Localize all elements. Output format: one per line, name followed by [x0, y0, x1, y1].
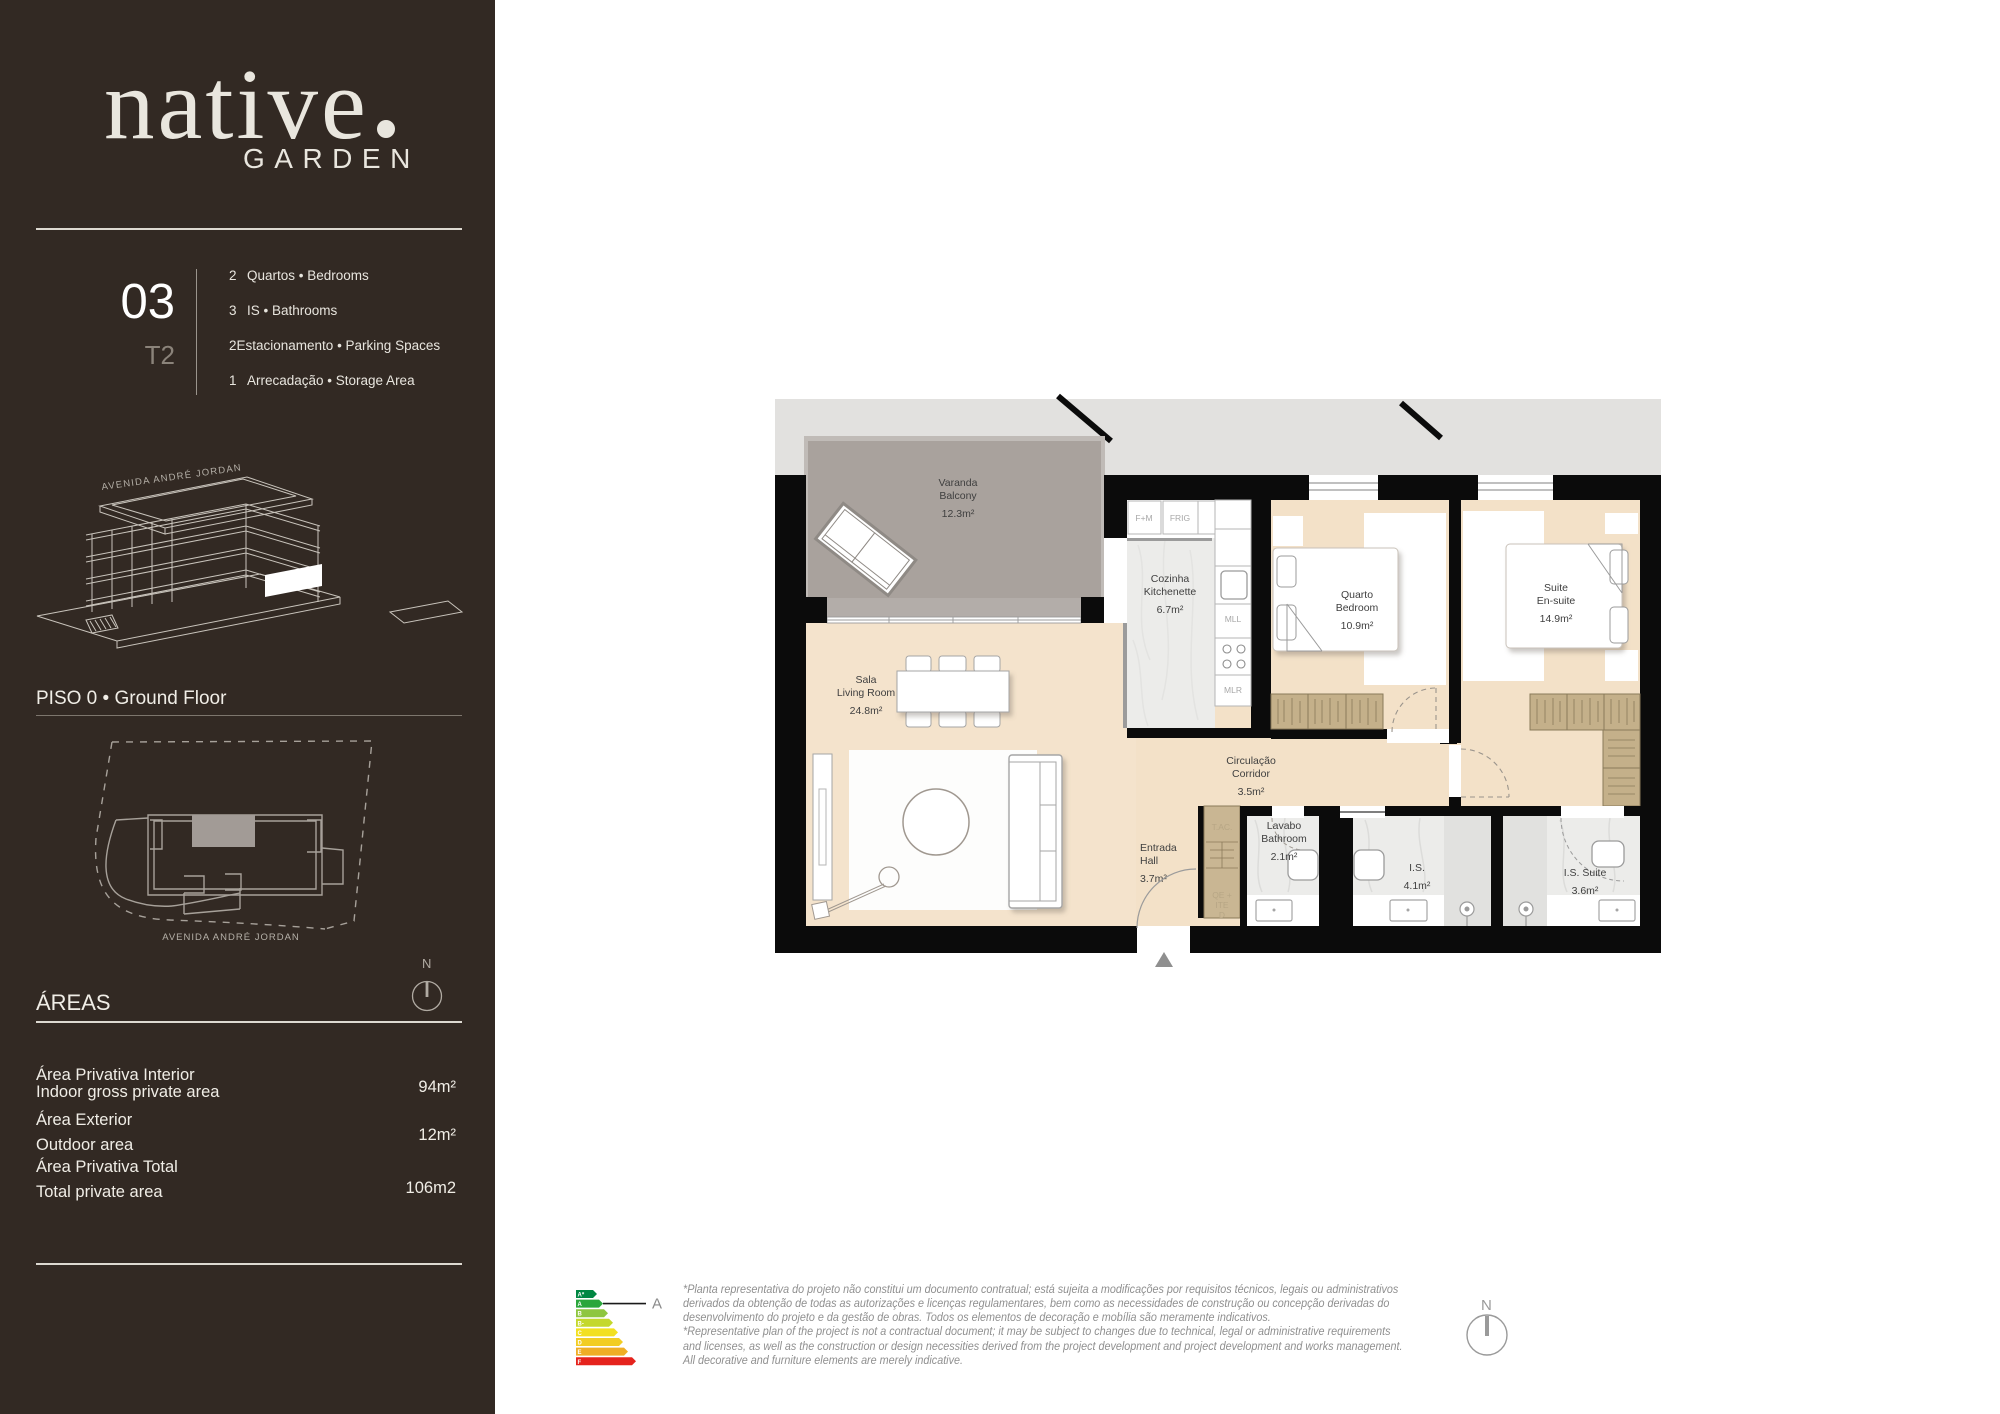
svg-text:3.6m²: 3.6m²: [1572, 885, 1599, 897]
svg-text:Corridor: Corridor: [1232, 768, 1270, 780]
svg-text:24.8m²: 24.8m²: [850, 705, 883, 717]
svg-text:Suite: Suite: [1544, 582, 1568, 594]
svg-text:Bathroom: Bathroom: [1261, 833, 1307, 845]
svg-text:Quarto: Quarto: [1341, 589, 1373, 601]
svg-text:4.1m²: 4.1m²: [1404, 880, 1431, 892]
svg-text:A*: A*: [578, 1293, 585, 1299]
svg-text:AVENIDA ANDRÉ JORDAN: AVENIDA ANDRÉ JORDAN: [162, 932, 300, 943]
svg-text:Living Room: Living Room: [837, 687, 896, 699]
svg-text:A: A: [652, 1296, 662, 1313]
svg-text:B: B: [578, 1312, 583, 1318]
svg-text:D: D: [1219, 910, 1225, 920]
svg-text:Varanda: Varanda: [939, 477, 978, 489]
svg-text:C: C: [578, 1331, 583, 1337]
svg-text:Cozinha: Cozinha: [1151, 573, 1190, 585]
svg-text:12.3m²: 12.3m²: [942, 508, 975, 520]
svg-text:N: N: [422, 956, 431, 971]
svg-text:I.S. Suite: I.S. Suite: [1564, 867, 1607, 879]
svg-text:MLR: MLR: [1224, 685, 1242, 695]
svg-text:E: E: [578, 1350, 582, 1356]
svg-text:B-: B-: [578, 1321, 584, 1327]
svg-text:Kitchenette: Kitchenette: [1144, 586, 1197, 598]
svg-text:Balcony: Balcony: [939, 490, 977, 502]
svg-text:F+M: F+M: [1135, 513, 1152, 523]
svg-text:QE +: QE +: [1212, 890, 1232, 900]
svg-text:6.7m²: 6.7m²: [1157, 604, 1184, 616]
svg-text:10.9m²: 10.9m²: [1341, 620, 1374, 632]
svg-text:3.5m²: 3.5m²: [1238, 786, 1265, 798]
svg-text:FRIG: FRIG: [1170, 513, 1190, 523]
svg-text:ITE: ITE: [1215, 900, 1229, 910]
svg-text:14.9m²: 14.9m²: [1540, 613, 1573, 625]
svg-text:Entrada: Entrada: [1140, 842, 1177, 854]
svg-text:En-suite: En-suite: [1537, 595, 1576, 607]
svg-text:I.S.: I.S.: [1409, 862, 1425, 874]
svg-text:Sala: Sala: [855, 674, 876, 686]
svg-text:D: D: [578, 1341, 583, 1347]
svg-text:AVENIDA ANDRÉ JORDAN: AVENIDA ANDRÉ JORDAN: [101, 462, 243, 493]
svg-text:N: N: [1481, 1297, 1492, 1314]
svg-text:A: A: [578, 1302, 583, 1308]
svg-text:Lavabo: Lavabo: [1267, 820, 1302, 832]
svg-text:Bedroom: Bedroom: [1336, 602, 1379, 614]
svg-text:Circulação: Circulação: [1226, 755, 1276, 767]
svg-text:F: F: [578, 1360, 582, 1366]
svg-text:2.1m²: 2.1m²: [1271, 851, 1298, 863]
svg-text:T.AC.: T.AC.: [1212, 822, 1233, 832]
svg-text:MLL: MLL: [1225, 614, 1242, 624]
svg-text:Hall: Hall: [1140, 855, 1158, 867]
